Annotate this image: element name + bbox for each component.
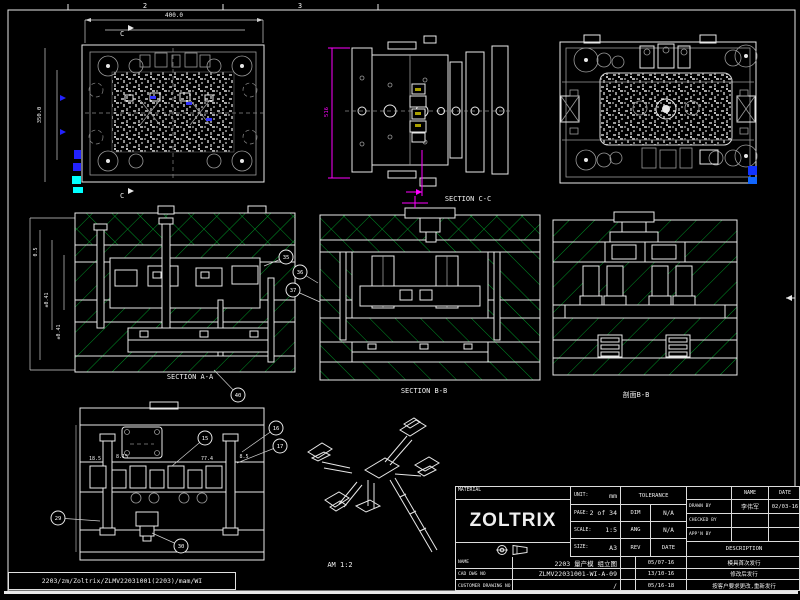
aa-dim-1: 0.5 <box>33 247 39 256</box>
cc-dim-height: 516 <box>324 107 330 117</box>
checked-by-name <box>732 514 769 528</box>
date-column-header: DATE <box>769 487 800 500</box>
balloon-number: 40 <box>235 393 242 399</box>
drawing-path-label[interactable]: 2203/zm/Zoltrix/ZLMV22031001(2203)/mam/W… <box>8 572 236 590</box>
view-ejector[interactable]: 18.5 8.15 77.4 8.5 <box>76 402 264 560</box>
balloon-number: 36 <box>297 270 304 276</box>
dwgno-row-date: 13/10-16 <box>636 569 687 580</box>
description-header: DESCRIPTION <box>687 542 800 557</box>
view-section-cc[interactable]: 516 SECTION C-C <box>324 36 512 203</box>
section-cc-label: SECTION C-C <box>445 195 491 203</box>
section-marker-c-top: C <box>120 30 124 38</box>
name-row-desc: 模具首次发行 <box>687 557 800 569</box>
page-label: PAGE: <box>574 511 588 516</box>
aa-dim-3: ±0.41 <box>56 324 62 339</box>
section-marker-c-bottom: C <box>120 192 124 200</box>
appn-by-label: APP'N BY <box>687 528 732 542</box>
balloon-number: 37 <box>290 288 297 294</box>
name-row-value: 2203 量产模 组立图 <box>513 557 621 569</box>
cad-drawing-canvas: 2 3 400.0 350.0 C C <box>0 0 800 600</box>
checked-by-date <box>769 514 800 528</box>
view-section-bb[interactable]: SECTION B-B <box>320 196 540 395</box>
section-bb-label: SECTION B-B <box>401 387 447 395</box>
dim-label: DIM <box>621 505 651 522</box>
ejector-dim-3: 77.4 <box>201 456 213 462</box>
drawing-path-text: 2203/zm/Zoltrix/ZLMV22031001(2203)/mam/W… <box>42 577 202 585</box>
page-value: 2 of 34 <box>590 509 617 517</box>
dwgno-row-value: ZLMV22031001-WI-A-09 <box>513 569 621 580</box>
appn-by-date <box>769 528 800 542</box>
drawn-by-label: DRAWN BY <box>687 500 732 514</box>
title-block: MATERIAL ZOLTRIX UNIT: mm PAGE: 2 of 34 … <box>455 486 800 591</box>
scale-cell: SCALE: 1:5 <box>571 522 621 539</box>
view-section-right[interactable]: 剖面B-B <box>553 212 795 399</box>
sheet-bottom-edge <box>4 591 798 594</box>
plan-dim-width: 400.0 <box>165 12 183 19</box>
section-aa-label: SECTION A-A <box>167 373 214 381</box>
dwgno-row-label: CAD DWG NO <box>456 569 513 580</box>
dwgno-row-rev <box>621 569 636 580</box>
size-label: SIZE: <box>574 545 588 550</box>
scale-value: 1:5 <box>605 526 617 534</box>
unit-cell: UNIT: mm <box>571 487 621 505</box>
name-column-header: NAME <box>732 487 769 500</box>
appn-by-name <box>732 528 769 542</box>
rev-label: REV <box>621 539 651 557</box>
view-plan-bottom[interactable] <box>560 35 757 184</box>
view-plan-top[interactable]: 400.0 350.0 C C <box>37 12 267 200</box>
balloon-number: 16 <box>273 426 280 432</box>
view-iso-runner[interactable]: AM 1:2 <box>308 418 439 569</box>
view-section-aa[interactable]: 0.5 ±0.41 ±0.41 SECTION A-A <box>30 206 295 381</box>
name-row-rev <box>621 557 636 569</box>
aa-dim-2: ±0.41 <box>44 292 50 307</box>
dwgno-row-desc: 修改后发行 <box>687 569 800 580</box>
ejector-dim-1: 18.5 <box>89 456 101 462</box>
tolerance-header: TOLERANCE <box>621 487 687 505</box>
name-row-label: NAME <box>456 557 513 569</box>
logo-text: ZOLTRIX <box>470 510 557 532</box>
page-cell: PAGE: 2 of 34 <box>571 505 621 522</box>
company-logo: ZOLTRIX <box>456 500 571 543</box>
dim-value: N/A <box>651 505 687 522</box>
plan-dim-height: 350.0 <box>37 107 43 124</box>
zone-label-3: 3 <box>298 2 302 10</box>
balloon-number: 29 <box>55 516 62 522</box>
ejector-dim-2: 8.15 <box>116 454 128 460</box>
projection-symbol-cell <box>456 543 571 557</box>
empty-header-cell <box>687 487 732 500</box>
rev-date-label: DATE <box>651 539 687 557</box>
zone-label-2: 2 <box>143 2 147 10</box>
balloon-number: 15 <box>202 436 209 442</box>
balloon-number: 35 <box>283 255 290 261</box>
balloon-number: 17 <box>277 444 284 450</box>
size-value: A3 <box>609 544 617 552</box>
drawn-by-name: 李伟军 <box>732 500 769 514</box>
material-label: MATERIAL <box>456 487 571 500</box>
checked-by-label: CHECKED BY <box>687 514 732 528</box>
ang-label: ANG <box>621 522 651 539</box>
size-cell: SIZE: A3 <box>571 539 621 557</box>
drawn-by-date: 02/03-16 <box>769 500 800 514</box>
ang-value: N/A <box>651 522 687 539</box>
unit-value: mm <box>609 492 617 500</box>
iso-scale-label: AM 1:2 <box>327 561 352 569</box>
name-row-date: 05/07-16 <box>636 557 687 569</box>
third-angle-projection-icon <box>496 544 530 556</box>
section-right-label: 剖面B-B <box>623 390 650 399</box>
unit-label: UNIT: <box>574 493 588 498</box>
scale-label: SCALE: <box>574 528 591 533</box>
balloon-number: 30 <box>178 544 185 550</box>
